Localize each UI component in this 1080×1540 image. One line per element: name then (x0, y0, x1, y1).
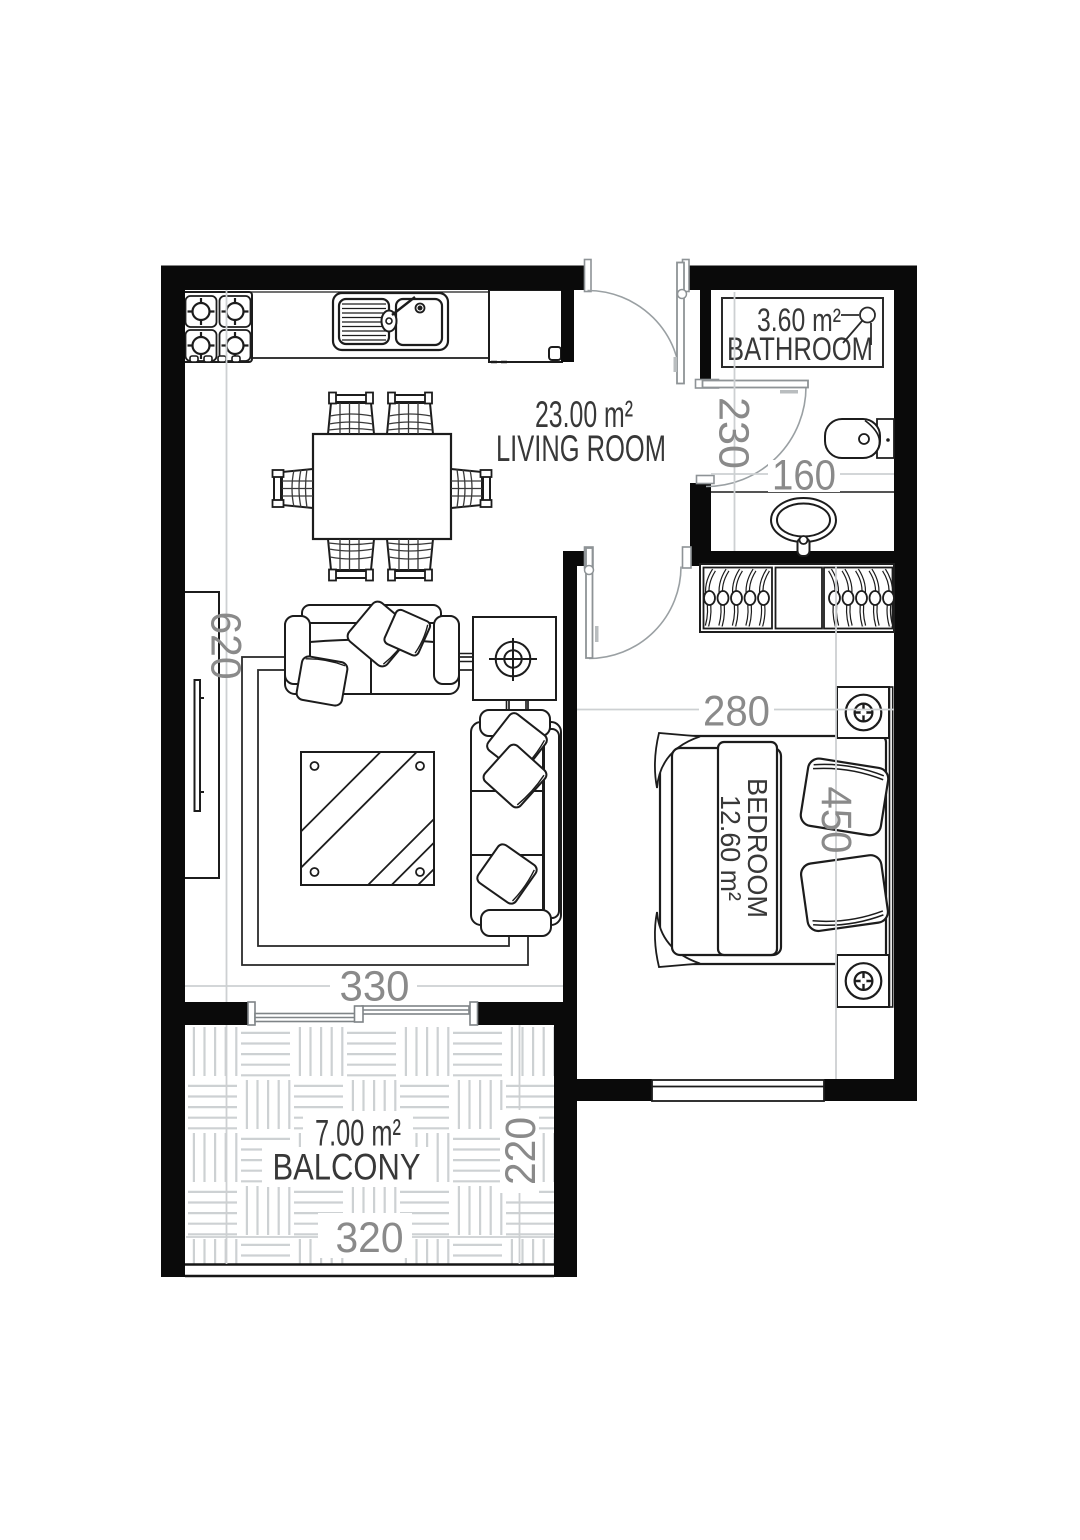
svg-text:450: 450 (812, 787, 860, 854)
svg-text:620: 620 (202, 612, 250, 680)
svg-text:220: 220 (497, 1117, 545, 1185)
svg-text:320: 320 (336, 1214, 404, 1262)
svg-text:160: 160 (772, 452, 836, 500)
svg-text:BALCONY: BALCONY (273, 1146, 421, 1188)
svg-text:LIVING ROOM: LIVING ROOM (496, 427, 666, 469)
svg-text:330: 330 (340, 963, 410, 1011)
svg-text:230: 230 (710, 397, 758, 469)
svg-text:12.60 m²: 12.60 m² (715, 795, 746, 901)
svg-text:BATHROOM: BATHROOM (727, 331, 873, 367)
svg-text:280: 280 (703, 688, 770, 736)
